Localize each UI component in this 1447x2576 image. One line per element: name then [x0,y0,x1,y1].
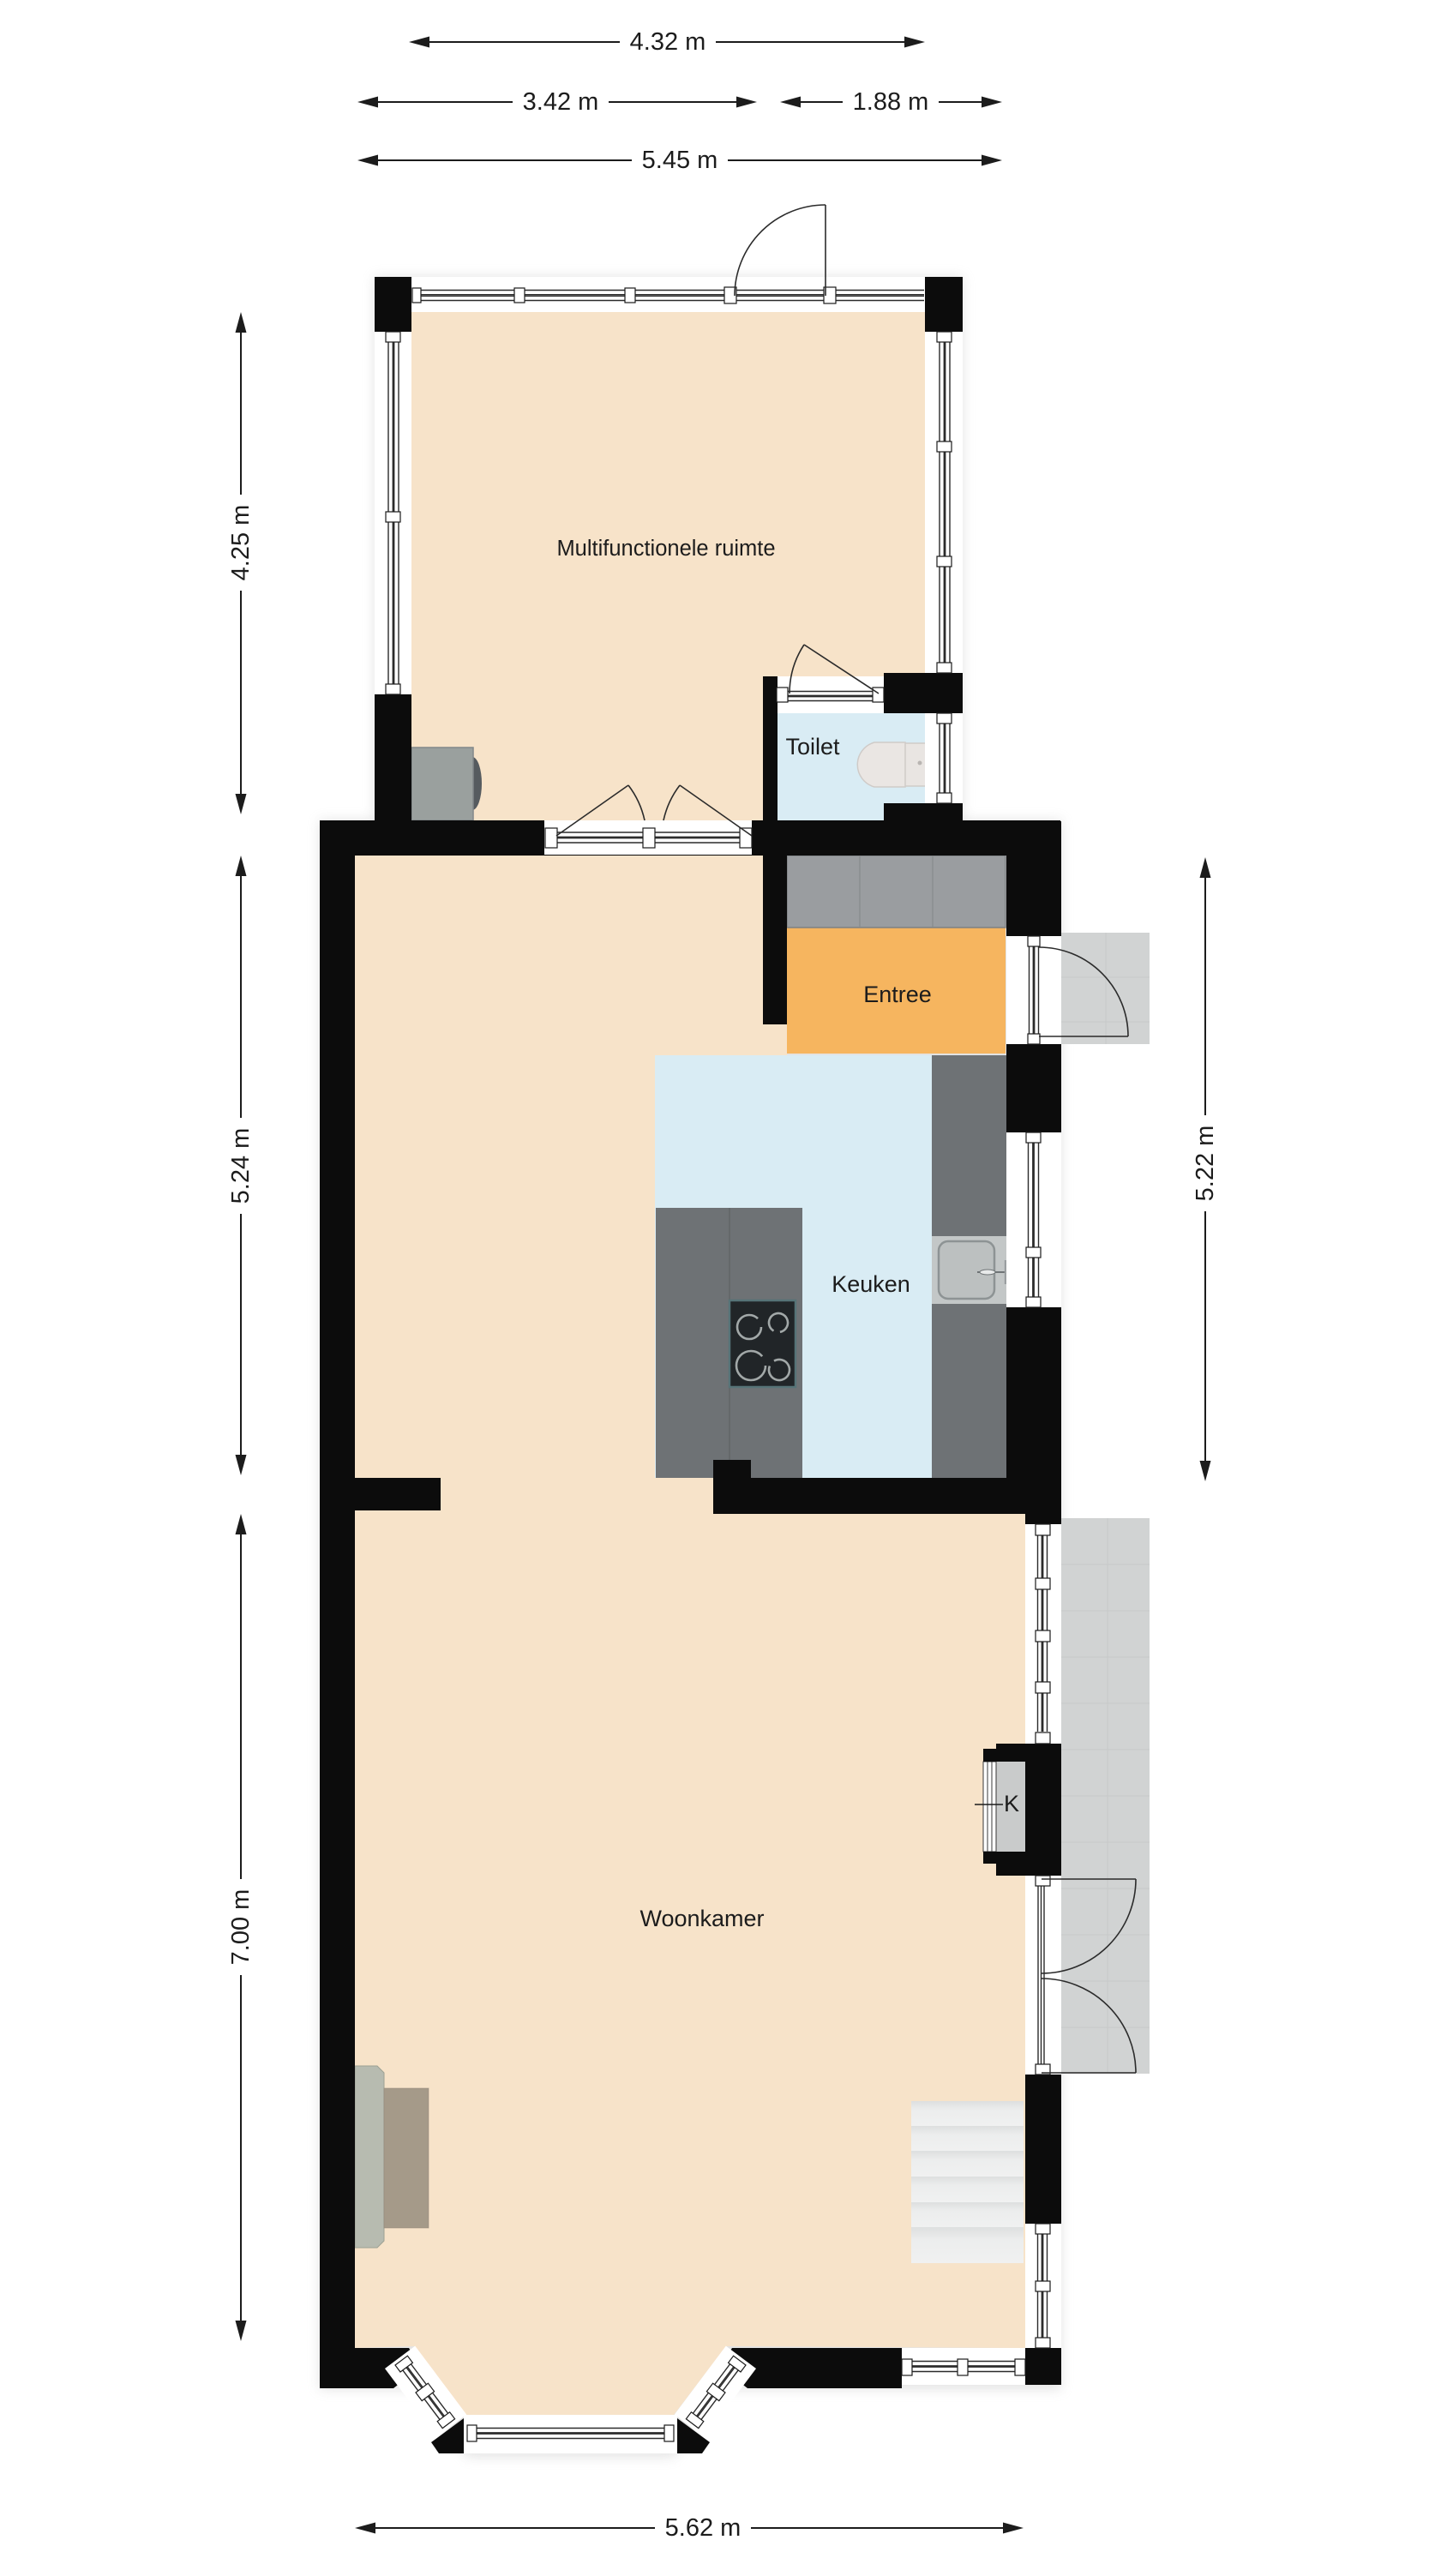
svg-text:4.25 m: 4.25 m [227,505,255,581]
svg-text:5.62 m: 5.62 m [665,2514,742,2542]
svg-text:5.45 m: 5.45 m [642,147,718,174]
svg-text:7.00 m: 7.00 m [227,1889,255,1966]
svg-text:1.88 m: 1.88 m [853,88,929,116]
svg-text:Woonkamer: Woonkamer [639,1906,764,1931]
svg-text:5.22 m: 5.22 m [1192,1126,1219,1202]
svg-text:Keuken: Keuken [832,1271,910,1297]
svg-text:Entree: Entree [863,982,932,1007]
svg-text:4.32 m: 4.32 m [630,28,706,56]
svg-text:Multifunctionele ruimte: Multifunctionele ruimte [556,537,775,561]
svg-text:Toilet: Toilet [785,734,840,760]
svg-text:3.42 m: 3.42 m [523,88,599,116]
svg-text:K: K [1004,1791,1019,1816]
svg-text:5.24 m: 5.24 m [227,1128,255,1204]
